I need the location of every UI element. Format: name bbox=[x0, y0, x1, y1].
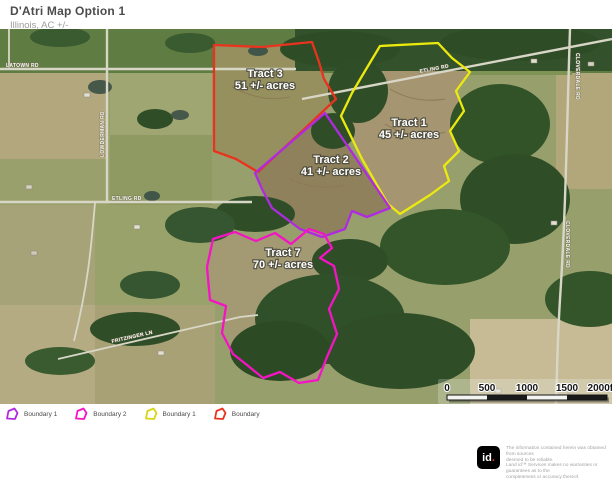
logo-dot: . bbox=[492, 452, 495, 464]
legend-label: Boundary 2 bbox=[93, 411, 126, 418]
tract-2-acres: 41 +/- acres bbox=[301, 166, 361, 178]
logo-text: id bbox=[482, 452, 492, 464]
map-header: D'Atri Map Option 1 Illinois, AC +/- bbox=[10, 4, 125, 31]
scale-bar: 0 500 1000 1500 2000ft bbox=[438, 379, 612, 404]
tract-3-acres: 51 +/- acres bbox=[235, 80, 295, 92]
scale-tick-500: 500 bbox=[479, 383, 496, 394]
legend: Boundary 1 Boundary 2 Boundary 1 Boundar… bbox=[5, 407, 260, 421]
scale-tick-0: 0 bbox=[444, 383, 450, 394]
scale-tick-1500: 1500 bbox=[556, 383, 579, 394]
legend-item-boundary-3: Boundary 1 bbox=[144, 407, 196, 421]
page-title: D'Atri Map Option 1 bbox=[10, 4, 125, 18]
map-container: LATOWN RD ETLING RD ETLING RD FRITZINGER… bbox=[0, 29, 612, 404]
legend-label: Boundary 1 bbox=[24, 411, 57, 418]
disclaimer-line: completeness or accuracy thereof. bbox=[506, 475, 612, 481]
road-label-etling-west: ETLING RD bbox=[112, 196, 142, 202]
boundary-2-icon bbox=[74, 407, 88, 421]
legend-label: Boundary bbox=[232, 411, 260, 418]
aerial-map-image: LATOWN RD ETLING RD ETLING RD FRITZINGER… bbox=[0, 29, 612, 404]
tract-7-acres: 70 +/- acres bbox=[253, 259, 313, 271]
tract-3-name: Tract 3 bbox=[247, 68, 282, 80]
tract-1-name: Tract 1 bbox=[391, 117, 426, 129]
road-label-latown: LATOWN RD bbox=[6, 63, 39, 69]
footer: id. The information contained herein was… bbox=[477, 446, 612, 481]
legend-label: Boundary 1 bbox=[163, 411, 196, 418]
tract-7-name: Tract 7 bbox=[265, 247, 300, 259]
road-label-cloverdale-1: CLOVERDALE RD bbox=[574, 53, 580, 100]
tract-2-name: Tract 2 bbox=[313, 154, 348, 166]
boundary-1-icon bbox=[5, 407, 19, 421]
tract-1-acres: 45 +/- acres bbox=[379, 129, 439, 141]
road-label-lowderman: LOWDERMAN RD bbox=[100, 111, 106, 157]
disclaimer-text: The information contained herein was obt… bbox=[506, 446, 612, 481]
legend-item-boundary-4: Boundary bbox=[213, 407, 260, 421]
disclaimer-line: Land id™ Services makes no warranties or… bbox=[506, 463, 612, 475]
legend-item-boundary-1: Boundary 1 bbox=[5, 407, 57, 421]
disclaimer-line: The information contained herein was obt… bbox=[506, 446, 612, 458]
boundary-3-icon bbox=[144, 407, 158, 421]
boundary-4-icon bbox=[213, 407, 227, 421]
scale-tick-1000: 1000 bbox=[516, 383, 539, 394]
land-id-logo: id. bbox=[477, 446, 500, 469]
scale-tick-2000ft: 2000ft bbox=[588, 383, 612, 394]
legend-item-boundary-2: Boundary 2 bbox=[74, 407, 126, 421]
road-label-cloverdale-2: CLOVERDALE RD bbox=[564, 221, 570, 268]
